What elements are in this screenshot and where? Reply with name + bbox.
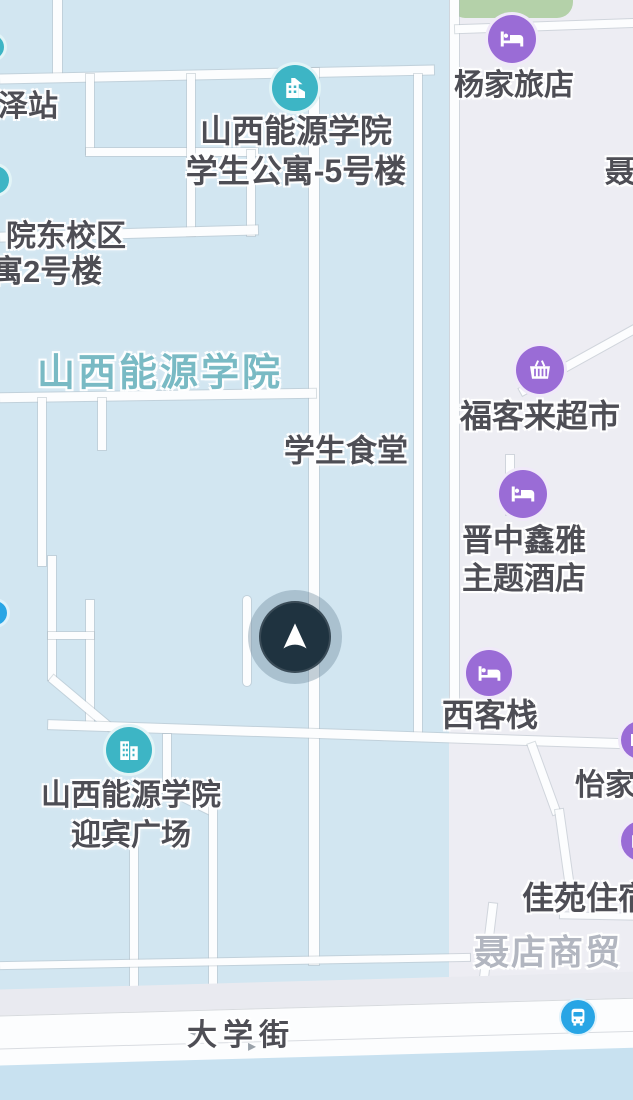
bed-glyph [497,24,527,54]
hotel-bed-icon[interactable] [463,647,515,699]
road-segment [130,846,138,1008]
basket-glyph [525,355,555,385]
poi-label-fukelai: 福客来超市 [460,391,620,437]
poi-label-yangjia: 杨家旅店 [454,60,574,104]
bed-glyph [475,659,504,688]
street-label-daxue: 大学街 [187,1010,295,1054]
poi-label-xinya: 晋中鑫雅 主题酒店 [462,522,586,598]
map-canvas[interactable]: 山西能源学院 聂店商贸 杨家旅店 山西能源学院 学生公寓-5号楼 泽站 院东校区… [0,0,633,1100]
poi-label-line: 晋中鑫雅 [462,522,586,560]
bus-glyph [567,1006,589,1028]
poi-label-zezhan: 泽站 [0,81,58,125]
hotel-bed-icon[interactable] [485,12,539,66]
poi-label-jiayuan: 佳苑住宿 [522,873,633,919]
road-segment [38,398,46,566]
road-segment [414,74,422,734]
road-segment [309,68,319,965]
current-location-arrow-icon [259,601,331,673]
road-segment [450,0,459,712]
buildings-glyph [114,735,144,765]
poi-label-yingbin: 山西能源学院 迎宾广场 [41,776,221,856]
road-segment [0,954,470,969]
poi-partial-icon[interactable] [0,32,7,62]
road-segment [0,65,434,83]
bed-glyph [508,479,538,509]
poi-partial-icon[interactable] [0,598,10,628]
supermarket-basket-icon[interactable] [513,343,567,397]
road-segment [48,632,94,639]
poi-label-line: 山西能源学院 [186,111,406,151]
poi-label-line: 学生公寓-5号楼 [186,151,406,191]
road-segment [53,0,62,78]
navigation-chevron-glyph [274,616,316,658]
poi-label-yijia: 怡家 [575,760,633,804]
poi-label-east-campus-line2: 寓2号楼 [0,246,102,291]
campus-area-label: 山西能源学院 [37,342,283,397]
road-segment [86,74,94,154]
poi-label-dorm5: 山西能源学院 学生公寓-5号楼 [186,111,406,191]
civic-building-icon[interactable] [103,724,155,776]
poi-label-line: 主题酒店 [462,560,586,598]
commercial-area-label: 聂店商贸 [474,925,622,976]
street-direction-arrow-icon: ▸ [248,1036,256,1056]
bed-glyph [628,728,633,752]
poi-label-line: 山西能源学院 [41,776,221,816]
hotel-bed-icon[interactable] [496,467,550,521]
poi-label-nie-partial: 聂 [605,147,633,191]
poi-label-canteen: 学生食堂 [284,426,408,471]
poi-partial-icon[interactable] [0,163,12,197]
school-building-icon[interactable] [269,62,321,114]
road-segment [98,398,106,450]
poi-label-line: 迎宾广场 [41,816,221,856]
bus-icon[interactable] [559,998,597,1036]
building-glyph [280,73,310,103]
bed-glyph [629,829,633,854]
road-segment [48,556,56,680]
